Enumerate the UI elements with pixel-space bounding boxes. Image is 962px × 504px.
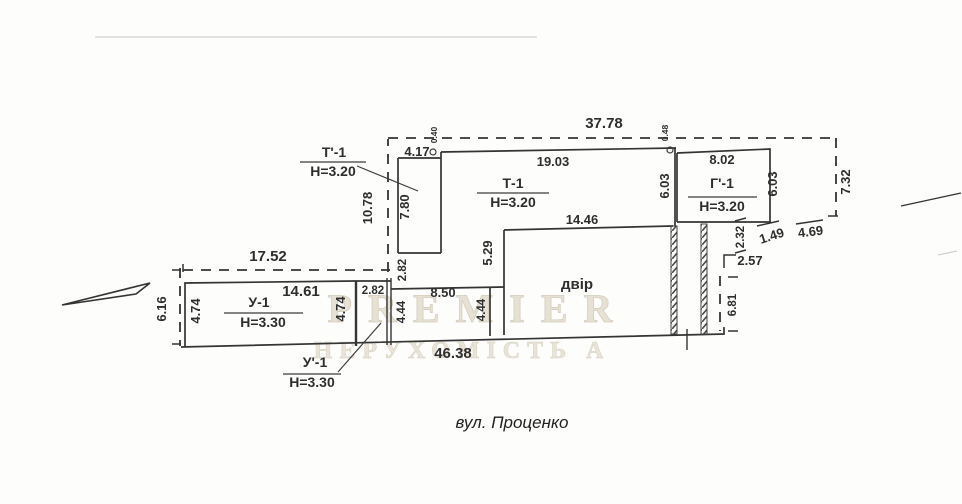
dim-14-46: 14.46 xyxy=(566,212,599,227)
dim-6-03-right: 6.03 xyxy=(765,171,780,196)
dim-8-02: 8.02 xyxy=(709,152,734,167)
dim-4-74-right: 4.74 xyxy=(333,296,348,322)
room-g1-name: Г'-1 xyxy=(710,175,734,191)
dim-2-82-vert: 2.82 xyxy=(397,259,409,281)
room-t1-height: Н=3.20 xyxy=(490,194,536,210)
dim-5-29: 5.29 xyxy=(480,240,495,265)
dim-46-38: 46.38 xyxy=(434,345,472,362)
dim-7-80: 7.80 xyxy=(397,194,412,219)
dim-2-57: 2.57 xyxy=(737,253,762,268)
t1-top-wall xyxy=(441,148,676,152)
room-t1-name: Т-1 xyxy=(503,175,524,191)
plan-drawing: PREMIER НЕРУХОМІСТЬ А xyxy=(0,0,962,504)
room-u1-annex-name: У'-1 xyxy=(303,354,328,370)
dim-boundary-top: 37.78 xyxy=(585,115,623,132)
room-t1-annex-height: Н=3.20 xyxy=(310,163,356,179)
dim-0-40: 0.40 xyxy=(429,126,439,143)
dim-4-17: 4.17 xyxy=(404,144,429,159)
scan-artifacts xyxy=(95,37,957,255)
room-t1-annex-name: Т'-1 xyxy=(322,144,347,160)
dim-14-61: 14.61 xyxy=(282,283,320,300)
dim-4-74-left: 4.74 xyxy=(188,298,203,324)
courtyard-label: двір xyxy=(561,276,593,293)
bracket-2-57 xyxy=(724,255,736,268)
street-name-label: вул. Проценко xyxy=(456,413,569,432)
dim-boundary-left: 17.52 xyxy=(249,248,287,265)
dim-8-50: 8.50 xyxy=(430,285,455,300)
dim-4-44-left: 4.44 xyxy=(396,300,408,323)
leader-t1-annex xyxy=(357,166,418,191)
dim-2-82-horiz: 2.82 xyxy=(362,285,384,297)
edge-diagonal-line xyxy=(901,193,961,206)
hatched-wall-left xyxy=(671,226,677,334)
scanned-floor-plan: PREMIER НЕРУХОМІСТЬ А xyxy=(0,0,962,504)
dim-19-03: 19.03 xyxy=(537,154,570,169)
dim-6-03-left: 6.03 xyxy=(657,173,672,198)
hatched-walls xyxy=(671,224,707,334)
dim-6-81: 6.81 xyxy=(727,293,739,316)
direction-pennant xyxy=(62,283,150,305)
dim-0-48: 0.48 xyxy=(660,124,670,141)
room-g1-height: Н=3.20 xyxy=(699,198,745,214)
survey-circle-left xyxy=(430,149,436,155)
tick xyxy=(735,218,746,221)
dim-2-32: 2.32 xyxy=(735,226,747,248)
room-u1-annex-height: Н=3.30 xyxy=(289,374,335,390)
room-u1-name: У-1 xyxy=(248,294,269,310)
dim-4-69: 4.69 xyxy=(797,223,824,241)
dim-10-78: 10.78 xyxy=(360,192,375,225)
room-u1-height: Н=3.30 xyxy=(240,314,286,330)
dim-4-44-right: 4.44 xyxy=(476,298,488,321)
hatched-wall-right xyxy=(701,224,707,334)
dim-6-16: 6.16 xyxy=(154,296,169,321)
scan-mark-right xyxy=(938,251,957,255)
dim-1-49: 1.49 xyxy=(757,225,786,247)
dim-7-32: 7.32 xyxy=(838,169,853,194)
